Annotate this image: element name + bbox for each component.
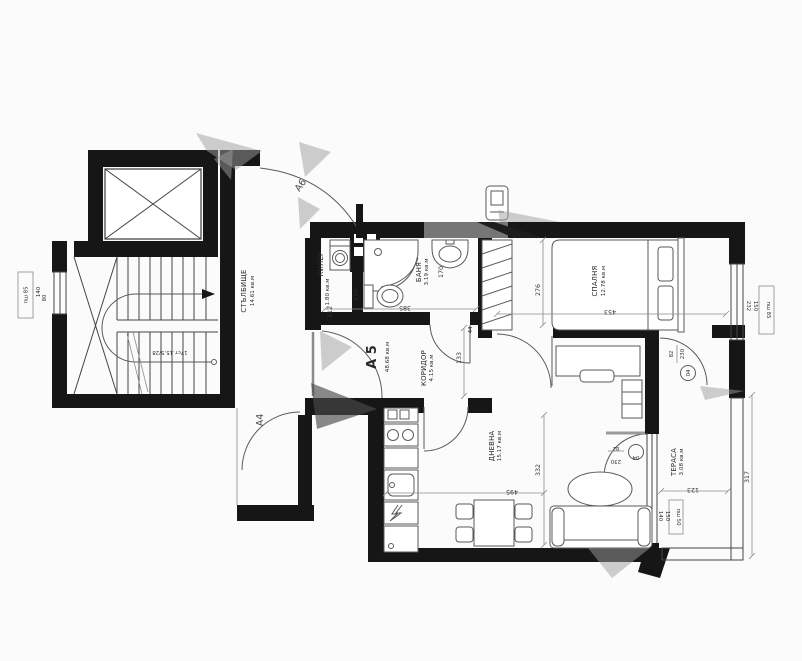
room-area-bedroom: 12.78 кв.м bbox=[601, 266, 607, 296]
door-ref-badge: 04 bbox=[686, 369, 692, 376]
room-label-stairwell: СТЪЛБИЩЕ bbox=[240, 269, 248, 312]
window-label-west: пш 85 140 80 bbox=[18, 272, 48, 318]
dim-terrace-height: 317 bbox=[744, 471, 751, 483]
room-area-living: 15.17 кв.м bbox=[497, 431, 503, 461]
stair-walk-line bbox=[102, 289, 217, 394]
window-height: 150 bbox=[752, 301, 758, 312]
window-tag: пш 85 bbox=[765, 301, 771, 318]
washing-machine-icon bbox=[330, 240, 350, 270]
toilet-icon bbox=[364, 285, 403, 308]
window-width: 232 bbox=[745, 301, 751, 311]
door-size-bottom: 230 bbox=[680, 348, 686, 359]
dim-gap: 44 bbox=[468, 326, 474, 333]
window-width: 140 bbox=[657, 511, 663, 522]
dim-bedroom-width: 453 bbox=[604, 308, 616, 315]
room-label-living: ДНЕВНА bbox=[488, 431, 496, 462]
door-size-bottom: 230 bbox=[610, 458, 621, 464]
door-label-a6: А6 bbox=[293, 177, 309, 194]
room-area-corridor: 4.15 кв.м bbox=[429, 355, 435, 382]
dim-living-width: 495 bbox=[506, 488, 518, 495]
dim-bath: 170 bbox=[438, 266, 445, 278]
closet-fixtures bbox=[330, 240, 350, 270]
window-east bbox=[729, 264, 745, 340]
room-area-terrace: 3.08 кв.м bbox=[679, 449, 685, 476]
bedroom-furniture bbox=[482, 186, 684, 332]
apartment-id-label: А 5 bbox=[365, 345, 380, 369]
dim-bath-width: 385 bbox=[399, 304, 411, 311]
door-living-terrace-arc bbox=[604, 433, 648, 477]
window-height: 150 bbox=[664, 511, 670, 522]
room-label-corridor: КОРИДОР bbox=[420, 350, 428, 386]
shower-icon bbox=[364, 240, 418, 291]
window-height: 80 bbox=[42, 294, 48, 301]
stair-spec-label: 17ст.15.5/28 bbox=[152, 349, 188, 355]
kitchen-sink-icon bbox=[384, 470, 418, 500]
room-area-stairwell: 14.61 кв.м bbox=[250, 276, 256, 306]
door-living-arc bbox=[424, 407, 468, 451]
room-label-closet: КИЛЕР bbox=[317, 252, 325, 277]
kitchen-counter bbox=[384, 408, 418, 552]
dim-entry: 112 bbox=[327, 306, 334, 318]
elevator-shaft bbox=[105, 169, 201, 239]
dim-living-height: 332 bbox=[535, 464, 542, 476]
dining-table-icon bbox=[456, 500, 532, 546]
door-a4-arc bbox=[237, 408, 300, 505]
staircase: 17ст.15.5/28 bbox=[74, 257, 218, 394]
door-label-a4: А4 bbox=[255, 414, 266, 427]
room-label-terrace: ТЕРАСА bbox=[670, 448, 678, 477]
bed-icon bbox=[552, 238, 684, 332]
desk-icon bbox=[556, 346, 642, 418]
terrace-railing bbox=[662, 398, 743, 560]
floor-plan-page: 17ст.15.5/28 bbox=[0, 0, 802, 661]
floor-plan-svg: 17ст.15.5/28 bbox=[0, 0, 802, 661]
window-label-terrace: пш 50 140 150 bbox=[657, 500, 683, 534]
stove-icon bbox=[384, 424, 418, 446]
dim-passage: 133 bbox=[456, 352, 463, 364]
door-ref-badge: 04 bbox=[632, 454, 639, 460]
room-label-bath: БАНЯ bbox=[415, 262, 423, 282]
window-tag: пш 50 bbox=[675, 508, 681, 526]
sink-icon bbox=[432, 240, 468, 268]
dim-bedroom-height: 276 bbox=[535, 284, 542, 296]
coffee-table-icon bbox=[568, 472, 632, 506]
door-bedroom-terrace-arc bbox=[660, 338, 707, 385]
wardrobe-icon bbox=[482, 240, 512, 330]
door-size-top: 82 bbox=[669, 351, 675, 358]
window-tag: пш 85 bbox=[24, 286, 30, 303]
room-label-bedroom: СПАЛНЯ bbox=[591, 265, 599, 296]
room-area-closet: 1.80 кв.м bbox=[325, 279, 331, 306]
electrical-panel-icon bbox=[384, 502, 418, 524]
window-label-east: пш 85 232 150 bbox=[745, 286, 774, 334]
dim-closet: 170 bbox=[353, 289, 360, 301]
door-bedroom-arc bbox=[497, 334, 552, 388]
room-area-bath: 3.19 кв.м bbox=[424, 259, 430, 286]
door-size-top: 82 bbox=[613, 445, 620, 451]
apartment-area-label: 48.68 кв.м bbox=[385, 342, 391, 372]
door-label-living-terrace: 82 230 04 bbox=[608, 445, 644, 465]
dim-terrace-width: 123 bbox=[687, 486, 699, 493]
window-west bbox=[52, 272, 67, 314]
sofa-icon bbox=[550, 506, 652, 548]
